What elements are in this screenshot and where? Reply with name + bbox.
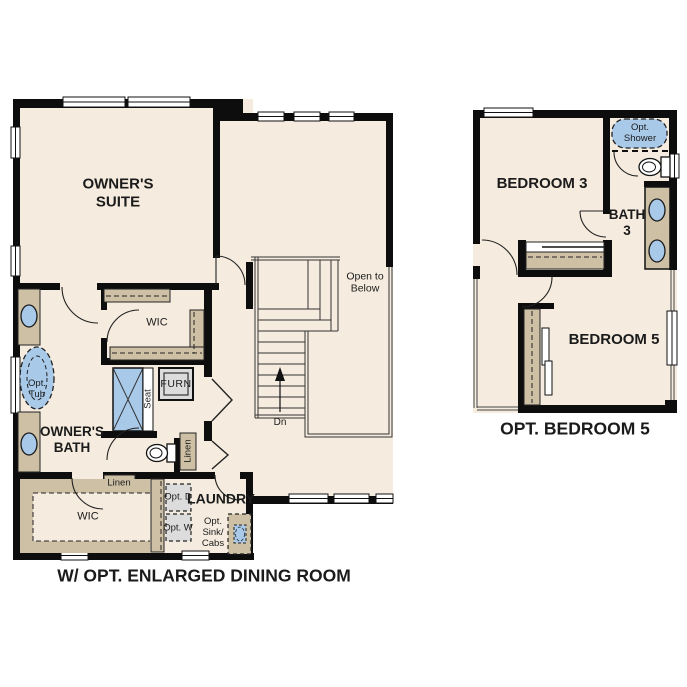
shower-fixture [113, 368, 153, 431]
floorplan-drawing [0, 0, 687, 687]
toilet-owners-bath [147, 444, 177, 462]
bath3-vanity [645, 187, 670, 269]
wic-shelf-top [104, 289, 170, 302]
floorplan-scene: OWNER'S SUITE WIC Opt. Tub OWNER'S BATH … [0, 0, 687, 687]
furnace-closet [159, 368, 193, 400]
lower-wic-shelving [20, 479, 150, 553]
opt-washer-box [166, 514, 191, 541]
opt-dryer-box [166, 484, 191, 511]
opt-laundry-sink [234, 525, 246, 543]
laundry-counter [151, 479, 164, 552]
bedroom3-closet [526, 242, 604, 269]
opt-shower-fixture [612, 119, 668, 151]
opt-tub-fixture [20, 347, 54, 409]
linen-closet-hall [180, 433, 196, 470]
toilet-bath3 [639, 157, 670, 177]
